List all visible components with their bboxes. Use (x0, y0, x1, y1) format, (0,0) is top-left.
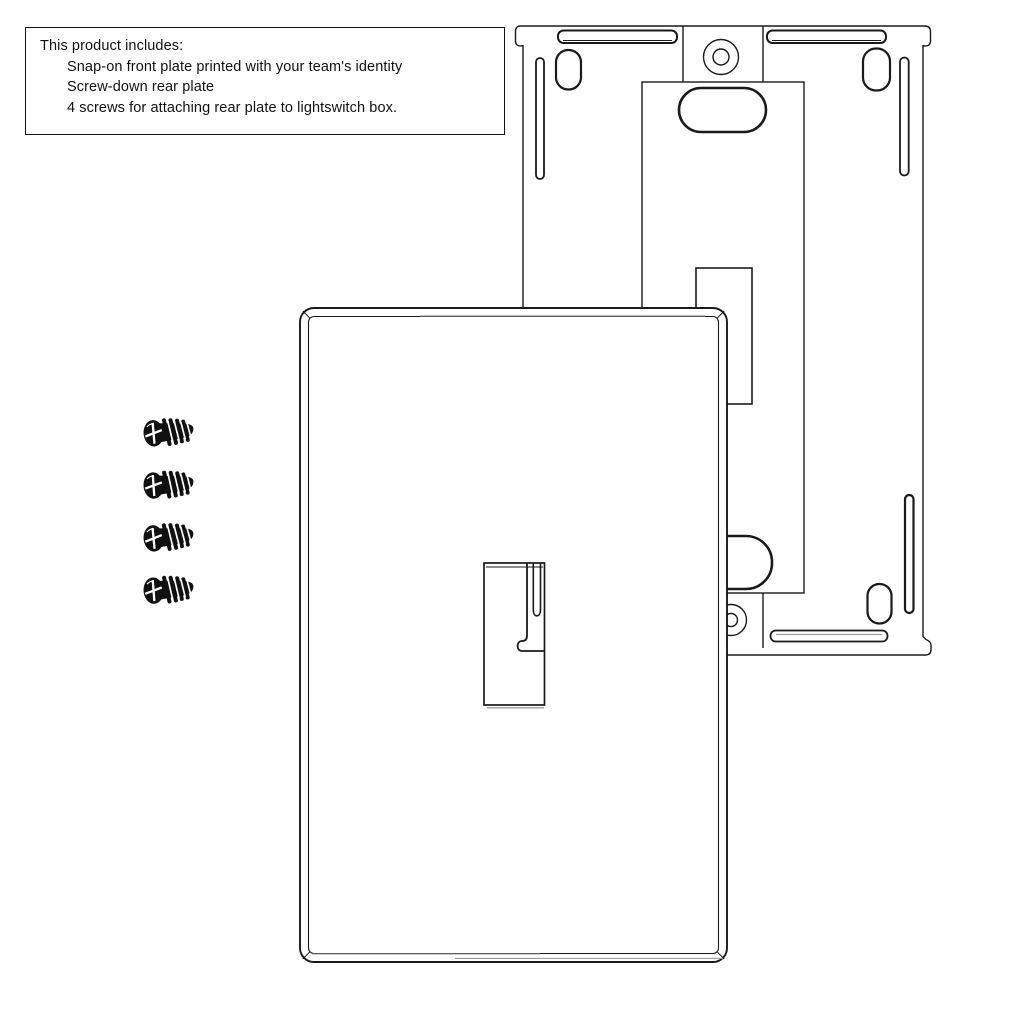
slot-bar-bottom (771, 631, 888, 642)
info-box-item-front-plate: Snap-on front plate printed with your te… (40, 57, 494, 78)
toggle-hole-outline (484, 563, 545, 705)
screw (143, 470, 195, 500)
info-box: This product includes: Snap-on front pla… (25, 27, 505, 135)
screw-boss-top-outer (704, 40, 739, 75)
slot-bar-top-left (558, 31, 677, 44)
front-plate (300, 308, 727, 962)
side-slot-right-upper (900, 58, 909, 176)
mount-tab-top (683, 26, 763, 82)
oval-slot-top (679, 88, 766, 132)
screw (142, 521, 194, 552)
corner-hole-top-left (556, 50, 581, 90)
toggle-switch-hole (484, 563, 545, 708)
side-slot-right-lower (905, 495, 914, 613)
info-box-item-rear-plate: Screw-down rear plate (40, 77, 494, 98)
screw (142, 417, 194, 448)
lightswitch-plate-diagram (0, 0, 1024, 1024)
screws (142, 417, 194, 605)
corner-hole-top-right (863, 49, 890, 91)
info-box-item-screws: 4 screws for attaching rear plate to lig… (40, 98, 494, 119)
info-box-title: This product includes: (40, 36, 494, 57)
corner-hole-bottom-right (868, 584, 892, 624)
slot-bar-top-right (767, 31, 886, 44)
screw (143, 574, 195, 604)
screw-boss-top-inner (713, 49, 729, 65)
product-illustration: This product includes: Snap-on front pla… (0, 0, 1024, 1024)
side-slot-left (536, 58, 544, 179)
